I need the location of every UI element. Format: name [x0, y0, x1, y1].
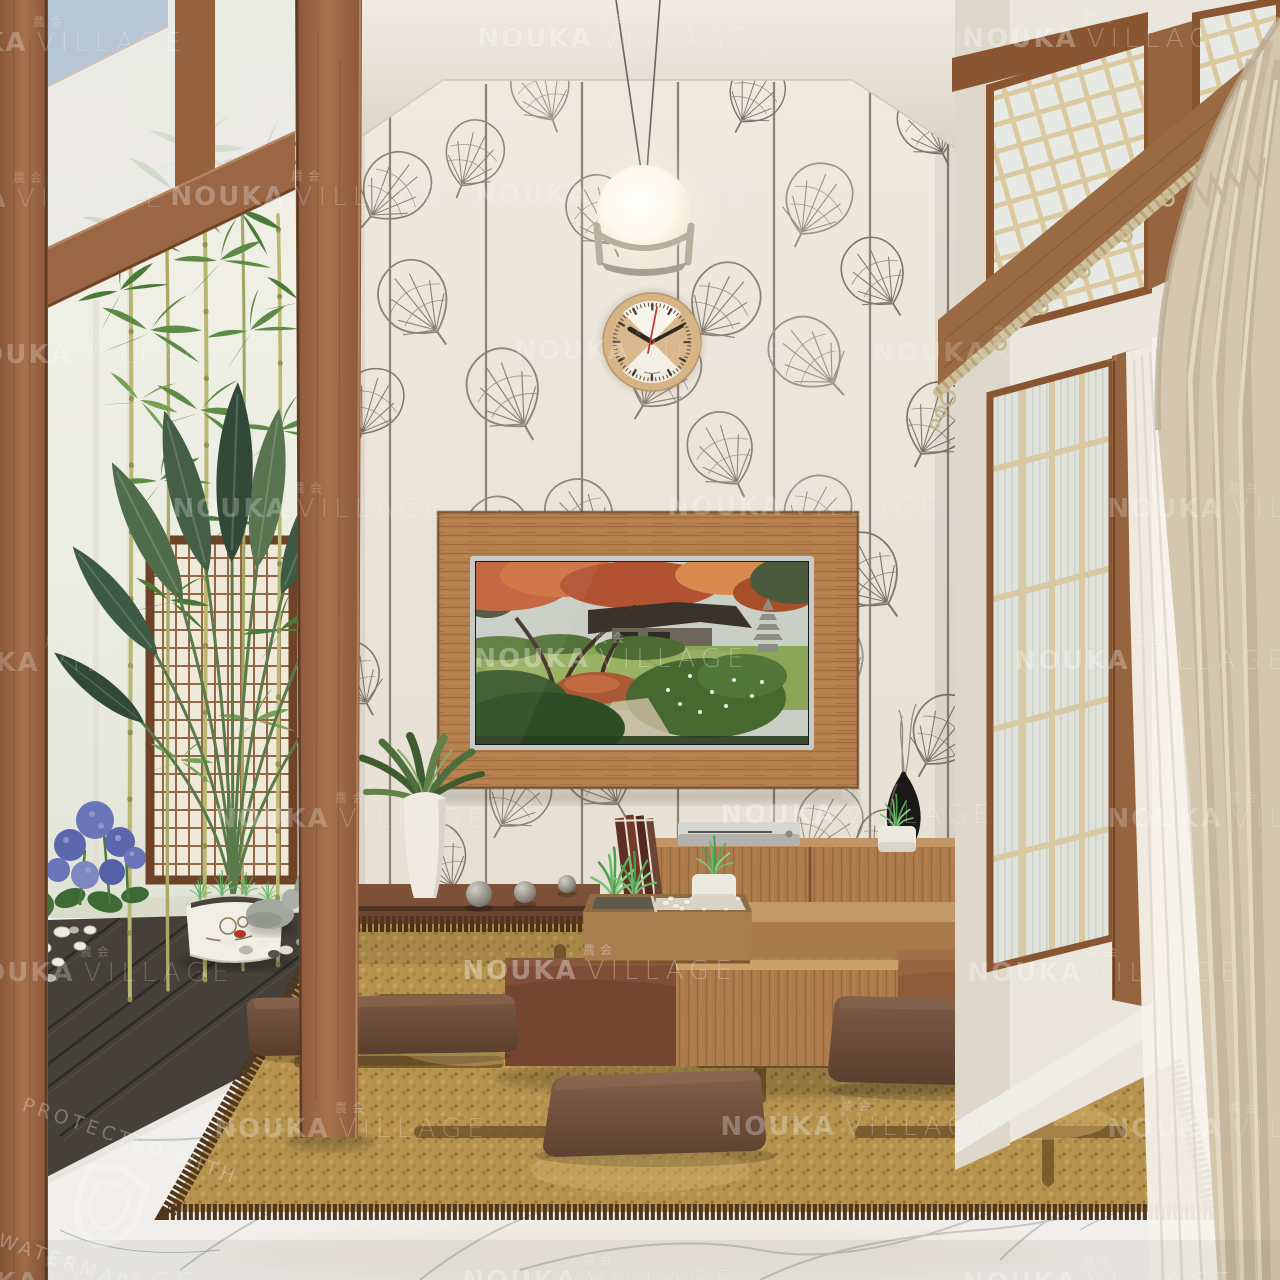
vignette [0, 0, 1280, 1280]
scene [0, 0, 1280, 1280]
interior-render: 農会NOUKAVILLAGE 農会NOUKAVILLAGE 農会NOUKAVIL… [0, 0, 1280, 1280]
